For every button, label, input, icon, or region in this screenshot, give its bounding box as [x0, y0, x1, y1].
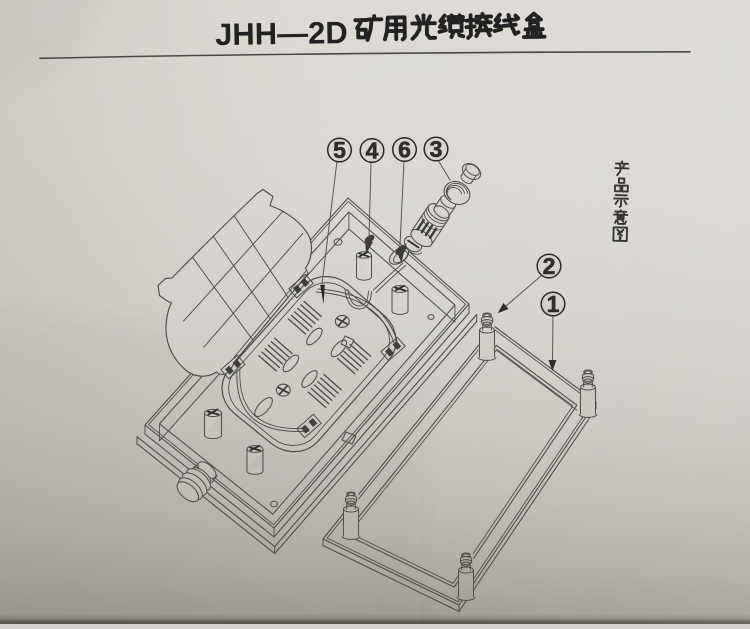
svg-text:5: 5	[333, 137, 346, 163]
svg-text:2: 2	[543, 253, 556, 279]
svg-text:JHH—2D: JHH—2D	[215, 15, 348, 52]
svg-text:4: 4	[366, 138, 379, 164]
svg-text:6: 6	[398, 137, 411, 163]
svg-text:1: 1	[547, 291, 560, 317]
svg-text:3: 3	[430, 136, 443, 162]
